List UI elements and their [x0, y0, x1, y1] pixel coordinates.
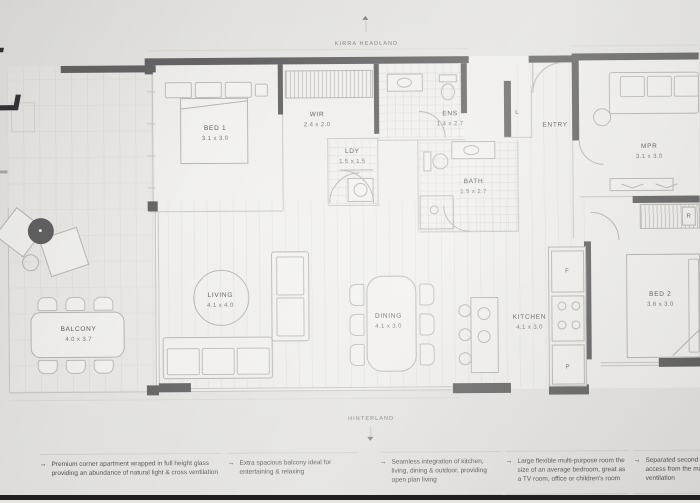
sofa-cushion — [620, 76, 645, 97]
room-dims: 4.1 x 4.0 — [207, 302, 234, 310]
pillow — [255, 84, 268, 97]
room-dims: 4.0 x 3.7 — [61, 336, 97, 344]
sofa-cushion — [647, 76, 672, 97]
side-table — [593, 108, 611, 126]
wall-wir-ens — [374, 64, 379, 134]
room-label-entry: ENTRY — [542, 121, 567, 129]
ground-line — [9, 397, 459, 401]
window-tick — [147, 123, 155, 124]
island-sink — [477, 307, 490, 320]
wall-pier — [148, 201, 158, 211]
arrow-icon: → — [379, 458, 386, 495]
wall-mpr-top — [572, 53, 699, 61]
pillow — [225, 82, 252, 98]
outdoor-chair — [65, 297, 85, 311]
sofa-cushion — [167, 348, 200, 375]
north-arrow-icon — [362, 16, 368, 20]
annotation-text: Extra spacious balcony ideal for enterta… — [239, 458, 357, 496]
south-arrow-line — [370, 427, 371, 437]
room-label-mpr: MPR 3.1 x 3.0 — [636, 143, 663, 161]
arrow-icon: → — [633, 456, 640, 493]
bar-stool — [458, 304, 471, 317]
facade-line — [149, 48, 469, 51]
annotation-5: → Separated second bedroom with access f… — [633, 449, 700, 494]
linen-label: L — [515, 110, 519, 116]
bath-basin — [463, 145, 479, 155]
outdoor-chair — [66, 360, 86, 374]
cooktop-burner — [557, 301, 566, 310]
wall-ens-right — [461, 63, 467, 113]
compass-bottom-label: HINTERLAND — [348, 416, 394, 422]
annotation-text: Premium corner apartment wrapped in full… — [51, 459, 221, 497]
outdoor-chair — [94, 360, 114, 374]
wall-pier — [147, 385, 159, 395]
room-label-wir: WIR 2.4 x 2.0 — [304, 111, 331, 129]
dining-chair — [419, 283, 434, 305]
room-dims: 1.5 x 1.5 — [339, 158, 366, 166]
room-label-bath: BATH 1.5 x 2.7 — [460, 178, 487, 196]
room-dims: 1.4 x 2.7 — [437, 120, 464, 128]
ens-toilet-bowl — [441, 83, 455, 100]
tv-unit — [610, 178, 674, 191]
bar-stool — [459, 352, 472, 365]
wall-linen — [504, 81, 511, 137]
cooktop-burner — [571, 301, 580, 310]
room-dims: 2.4 x 2.0 — [304, 121, 331, 129]
room-dims: 4.1 x 3.0 — [513, 324, 546, 332]
sofa-cushion — [202, 348, 235, 375]
room-label-ens: ENS 1.4 x 2.7 — [437, 110, 464, 128]
window-tick — [147, 91, 155, 92]
wall-dining-bottom — [453, 383, 511, 393]
entry-floor — [517, 62, 573, 202]
annotation-4: → Large flexible multi-purpose room the … — [505, 450, 628, 495]
wall-balcony-top — [61, 65, 156, 73]
outdoor-chair — [38, 360, 58, 374]
brand-logo-glyph: L — [0, 38, 26, 124]
dining-chair — [349, 314, 364, 336]
wall-living-bottom — [159, 383, 191, 392]
room-label-living: LIVING 4.1 x 4.0 — [207, 292, 234, 310]
shower-rose — [430, 205, 439, 214]
room-name: LIVING — [207, 292, 234, 300]
cooktop — [551, 295, 584, 341]
arrow-icon: → — [39, 460, 46, 497]
fridge-label: F — [565, 268, 569, 274]
annotation-text: Separated second bedroom with access fro… — [645, 455, 700, 493]
sofa-cushion — [276, 256, 304, 295]
outdoor-chair — [93, 297, 113, 311]
dining-chair — [419, 313, 434, 335]
bar-stool — [459, 328, 472, 341]
cooktop-burner — [557, 320, 566, 329]
room-dims: 3.1 x 3.0 — [202, 135, 229, 143]
room-name: BATH — [460, 178, 487, 186]
pillow — [688, 259, 700, 353]
room-label-dining: DINING 4.1 x 3.0 — [375, 313, 402, 331]
room-label-balcony: BALCONY 4.0 x 3.7 — [61, 326, 97, 344]
sofa-cushion — [276, 297, 304, 336]
window-tick — [147, 155, 155, 156]
arrow-icon: → — [505, 457, 512, 494]
window-tick — [148, 187, 156, 188]
room-name: ENS — [437, 110, 464, 118]
wall-entry-top — [529, 55, 574, 62]
wall-mpr-left — [572, 60, 580, 140]
sofa-cushion — [237, 348, 270, 375]
annotation-text: Large flexible multi-purpose room the si… — [517, 456, 628, 494]
robe-label: R — [686, 214, 691, 220]
room-name: DINING — [375, 313, 402, 321]
room-dims: 4.1 x 3.0 — [375, 323, 402, 331]
outdoor-chair — [37, 297, 57, 311]
room-name: WIR — [304, 111, 331, 119]
room-dims: 1.5 x 2.7 — [460, 188, 487, 196]
wall-bed2-bottom — [659, 358, 700, 367]
room-name: KITCHEN — [513, 314, 546, 322]
pillow — [165, 82, 192, 98]
planter-pot — [22, 254, 39, 271]
room-name: ENTRY — [542, 121, 567, 129]
washing-machine-door — [354, 183, 368, 197]
room-name: BED 2 — [647, 291, 674, 299]
room-label-bed2: BED 2 3.6 x 3.0 — [647, 291, 674, 309]
room-name: BALCONY — [61, 326, 97, 334]
facade-line — [572, 45, 699, 47]
room-name: MPR — [636, 143, 663, 151]
photo-bottom-edge — [0, 495, 700, 500]
ens-toilet-cistern — [439, 74, 457, 82]
wir-robe-hatch — [285, 70, 373, 99]
pillow — [195, 82, 222, 98]
compass-top-label: KIRRA HEADLAND — [335, 41, 398, 47]
arrow-icon: → — [227, 459, 234, 496]
annotation-text: Seamless integration of kitchen, living,… — [391, 457, 501, 495]
dining-chair — [349, 284, 364, 306]
bath-toilet-bowl — [432, 153, 448, 169]
dining-chair — [420, 343, 435, 365]
room-name: LDY — [339, 148, 366, 156]
sofa-cushion — [674, 76, 699, 97]
dining-chair — [350, 344, 365, 366]
cooktop-burner — [571, 320, 580, 329]
balcony-balustrade-bottom — [9, 391, 149, 393]
annotation-2: → Extra spacious balcony ideal for enter… — [227, 452, 357, 497]
room-label-bed1: BED 1 3.1 x 3.0 — [202, 125, 229, 143]
south-arrow-icon — [367, 437, 373, 441]
pantry-label: P — [566, 364, 570, 370]
room-name: BED 1 — [202, 125, 229, 133]
annotation-1: → Premium corner apartment wrapped in fu… — [39, 453, 221, 498]
room-label-ldy: LDY 1.5 x 1.5 — [339, 148, 366, 166]
table-dot — [39, 229, 42, 232]
island-sink — [478, 330, 491, 343]
room-dims: 3.6 x 3.0 — [647, 301, 674, 309]
north-arrow-line — [365, 21, 366, 32]
room-dims: 3.1 x 3.0 — [636, 153, 663, 161]
bath-toilet-cistern — [423, 151, 431, 171]
ens-basin — [397, 78, 412, 88]
annotation-3: → Seamless integration of kitchen, livin… — [379, 451, 501, 496]
wall-bed2-top — [633, 196, 700, 203]
wall-bed1-wir — [278, 64, 283, 114]
floorplan-page: L KIRRA HEADLAND HINTERLAND — [0, 0, 700, 502]
room-label-kitchen: KITCHEN 4.1 x 3.0 — [513, 314, 547, 332]
